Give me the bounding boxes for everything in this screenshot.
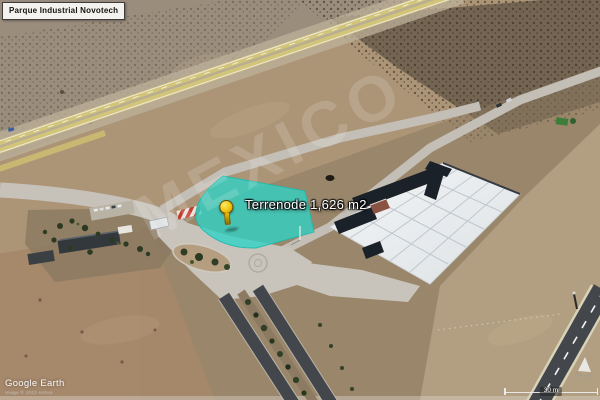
map-viewport[interactable]: MEXICO Parque Industrial Novotech Terren… <box>0 0 600 400</box>
placemark-label: Terrenode 1,626 m2 <box>245 197 367 212</box>
google-earth-logo: Google Earth <box>5 378 65 389</box>
scale-bar: 30 m <box>504 383 598 396</box>
scale-bar-label: 30 m <box>540 387 562 396</box>
scale-bar-tick-right <box>597 388 599 395</box>
pushpin-stem <box>224 213 231 225</box>
map-title-label: Parque Industrial Novotech <box>2 2 125 20</box>
scale-bar-tick-left <box>504 388 506 395</box>
pushpin-icon[interactable] <box>217 199 238 230</box>
imagery-attribution: Image © 2023 Airbus <box>5 390 53 395</box>
